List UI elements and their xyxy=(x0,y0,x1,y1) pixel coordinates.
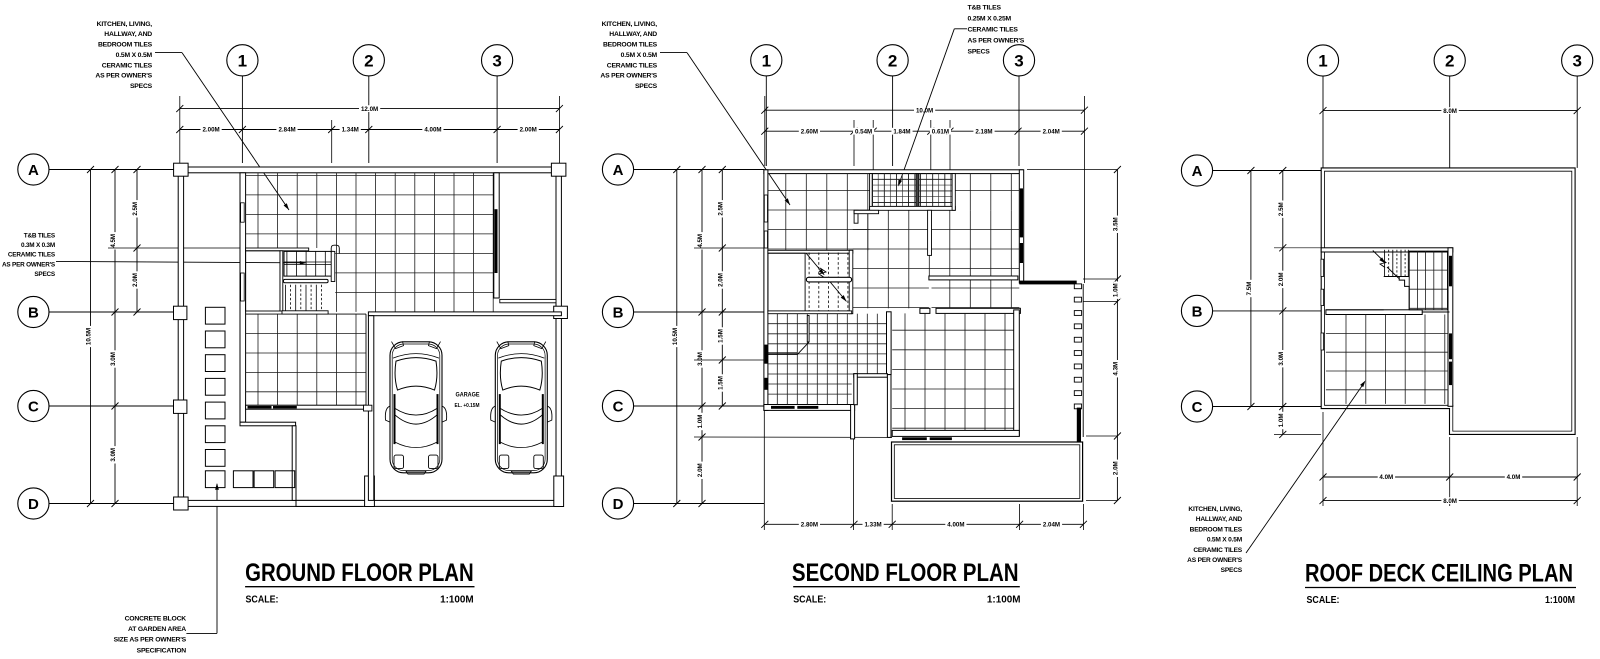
svg-text:T&B TILES: T&B TILES xyxy=(24,232,56,239)
svg-text:2.04M: 2.04M xyxy=(1043,128,1060,135)
svg-text:4.5M: 4.5M xyxy=(110,234,117,248)
svg-text:CERAMIC TILES: CERAMIC TILES xyxy=(607,62,658,69)
svg-text:0.54M: 0.54M xyxy=(855,128,872,135)
svg-text:2.5M: 2.5M xyxy=(717,202,724,216)
svg-text:4.0M: 4.0M xyxy=(1379,474,1393,481)
svg-text:2.84M: 2.84M xyxy=(278,127,295,134)
svg-text:3.0M: 3.0M xyxy=(110,352,117,366)
svg-text:2.5M: 2.5M xyxy=(1278,202,1285,216)
svg-text:2.04M: 2.04M xyxy=(1043,522,1060,529)
svg-text:1: 1 xyxy=(762,51,771,70)
svg-text:BEDROOM TILES: BEDROOM TILES xyxy=(98,42,153,49)
svg-text:HALLWAY, AND: HALLWAY, AND xyxy=(609,31,657,38)
svg-text:CERAMIC TILES: CERAMIC TILES xyxy=(8,252,56,259)
svg-text:2.80M: 2.80M xyxy=(801,522,818,529)
svg-text:1:100M: 1:100M xyxy=(987,593,1021,605)
svg-text:0.5M X 0.5M: 0.5M X 0.5M xyxy=(1207,537,1243,544)
svg-text:BEDROOM TILES: BEDROOM TILES xyxy=(603,42,658,49)
svg-text:3.5M: 3.5M xyxy=(1112,217,1119,231)
svg-text:EL. +0.15M: EL. +0.15M xyxy=(455,403,480,409)
svg-text:4.3M: 4.3M xyxy=(1112,362,1119,376)
svg-text:A: A xyxy=(28,162,39,179)
svg-text:A: A xyxy=(613,162,624,179)
svg-text:KITCHEN, LIVING,: KITCHEN, LIVING, xyxy=(1188,506,1242,513)
svg-text:2: 2 xyxy=(364,51,373,70)
svg-text:CONCRETE BLOCK: CONCRETE BLOCK xyxy=(125,615,187,622)
svg-text:2.0M: 2.0M xyxy=(717,273,724,287)
svg-text:SCALE:: SCALE: xyxy=(1307,594,1340,606)
svg-text:AS PER OWNER'S: AS PER OWNER'S xyxy=(2,261,56,268)
svg-text:AS PER OWNER'S: AS PER OWNER'S xyxy=(600,73,657,80)
svg-text:CERAMIC TILES: CERAMIC TILES xyxy=(102,62,153,69)
svg-text:SPECS: SPECS xyxy=(130,83,153,90)
svg-text:2.0M: 2.0M xyxy=(1112,461,1119,475)
svg-text:B: B xyxy=(28,304,39,321)
svg-text:HALLWAY, AND: HALLWAY, AND xyxy=(1196,516,1243,523)
svg-text:3.0M: 3.0M xyxy=(1278,352,1285,366)
svg-text:1.33M: 1.33M xyxy=(864,522,881,529)
svg-text:4.00M: 4.00M xyxy=(947,522,964,529)
svg-text:SPECS: SPECS xyxy=(1221,567,1243,574)
svg-text:SPECS: SPECS xyxy=(34,271,56,278)
svg-text:2.5M: 2.5M xyxy=(132,202,139,216)
svg-text:10.5M: 10.5M xyxy=(86,328,93,345)
svg-text:B: B xyxy=(1192,303,1203,320)
svg-text:D: D xyxy=(613,496,624,513)
svg-text:4.5M: 4.5M xyxy=(697,234,704,248)
svg-text:3.0M: 3.0M xyxy=(110,448,117,462)
svg-text:T&B TILES: T&B TILES xyxy=(968,5,1002,12)
svg-text:SECOND FLOOR PLAN: SECOND FLOOR PLAN xyxy=(792,559,1019,587)
svg-text:AT GARDEN AREA: AT GARDEN AREA xyxy=(128,626,186,633)
svg-text:0.61M: 0.61M xyxy=(932,128,949,135)
svg-text:1.84M: 1.84M xyxy=(893,128,910,135)
svg-text:1:100M: 1:100M xyxy=(440,593,474,605)
svg-text:4.0M: 4.0M xyxy=(1507,474,1521,481)
svg-text:GARAGE: GARAGE xyxy=(456,392,481,399)
svg-text:SPECS: SPECS xyxy=(968,49,991,56)
svg-text:D: D xyxy=(28,496,39,513)
svg-text:1.5M: 1.5M xyxy=(717,376,724,390)
svg-text:SCALE:: SCALE: xyxy=(246,593,279,605)
svg-text:1.34M: 1.34M xyxy=(342,127,359,134)
svg-text:0.5M X 0.5M: 0.5M X 0.5M xyxy=(116,52,153,59)
svg-text:2.60M: 2.60M xyxy=(801,128,818,135)
svg-text:3: 3 xyxy=(492,51,501,70)
svg-text:1.0M: 1.0M xyxy=(697,415,704,429)
svg-text:1.0M: 1.0M xyxy=(1112,283,1119,297)
svg-text:2.0M: 2.0M xyxy=(1278,273,1285,287)
svg-text:2.00M: 2.00M xyxy=(520,127,537,134)
svg-text:3: 3 xyxy=(1572,52,1581,71)
svg-text:8.0M: 8.0M xyxy=(1443,108,1457,115)
svg-text:2: 2 xyxy=(888,51,897,70)
svg-text:HALLWAY, AND: HALLWAY, AND xyxy=(104,31,152,38)
svg-text:0.3M X 0.3M: 0.3M X 0.3M xyxy=(21,242,55,249)
svg-text:3: 3 xyxy=(1014,51,1023,70)
svg-text:KITCHEN, LIVING,: KITCHEN, LIVING, xyxy=(602,21,658,28)
svg-text:C: C xyxy=(28,398,39,415)
svg-text:SCALE:: SCALE: xyxy=(793,593,826,605)
svg-text:0.25M X 0.25M: 0.25M X 0.25M xyxy=(968,16,1012,23)
svg-text:0.5M X 0.5M: 0.5M X 0.5M xyxy=(621,52,658,59)
svg-text:1: 1 xyxy=(1318,52,1327,71)
svg-text:2.00M: 2.00M xyxy=(202,127,219,134)
svg-text:2: 2 xyxy=(1445,52,1454,71)
svg-text:1: 1 xyxy=(238,51,247,70)
svg-text:SPECS: SPECS xyxy=(635,83,658,90)
svg-text:1.0M: 1.0M xyxy=(1278,414,1285,428)
svg-text:AS PER OWNER'S: AS PER OWNER'S xyxy=(968,38,1025,45)
svg-text:CERAMIC TILES: CERAMIC TILES xyxy=(1193,547,1242,554)
svg-text:4.00M: 4.00M xyxy=(424,127,441,134)
svg-text:KITCHEN, LIVING,: KITCHEN, LIVING, xyxy=(97,21,153,28)
svg-text:3.0M: 3.0M xyxy=(697,352,704,366)
svg-text:A: A xyxy=(1192,163,1203,180)
svg-text:12.0M: 12.0M xyxy=(361,106,378,113)
svg-text:2.0M: 2.0M xyxy=(697,463,704,477)
svg-text:GROUND FLOOR PLAN: GROUND FLOOR PLAN xyxy=(245,559,474,587)
svg-text:C: C xyxy=(1192,399,1203,416)
svg-text:1.5M: 1.5M xyxy=(717,329,724,343)
svg-text:C: C xyxy=(613,398,624,415)
svg-text:2.18M: 2.18M xyxy=(975,128,992,135)
svg-text:SPECIFICATION: SPECIFICATION xyxy=(137,647,187,654)
svg-text:BEDROOM TILES: BEDROOM TILES xyxy=(1190,526,1243,533)
svg-text:2.0M: 2.0M xyxy=(132,273,139,287)
svg-text:B: B xyxy=(613,304,624,321)
svg-text:CERAMIC TILES: CERAMIC TILES xyxy=(968,27,1019,34)
svg-text:AS PER OWNER'S: AS PER OWNER'S xyxy=(95,73,152,80)
svg-text:AS PER OWNER'S: AS PER OWNER'S xyxy=(1187,557,1243,564)
svg-text:7.5M: 7.5M xyxy=(1246,282,1253,296)
svg-text:SIZE AS PER OWNER'S: SIZE AS PER OWNER'S xyxy=(114,637,187,644)
svg-text:10.5M: 10.5M xyxy=(672,328,679,345)
svg-text:ROOF DECK CEILING PLAN: ROOF DECK CEILING PLAN xyxy=(1305,560,1573,588)
svg-text:1:100M: 1:100M xyxy=(1545,594,1575,606)
svg-text:8.0M: 8.0M xyxy=(1443,498,1457,505)
